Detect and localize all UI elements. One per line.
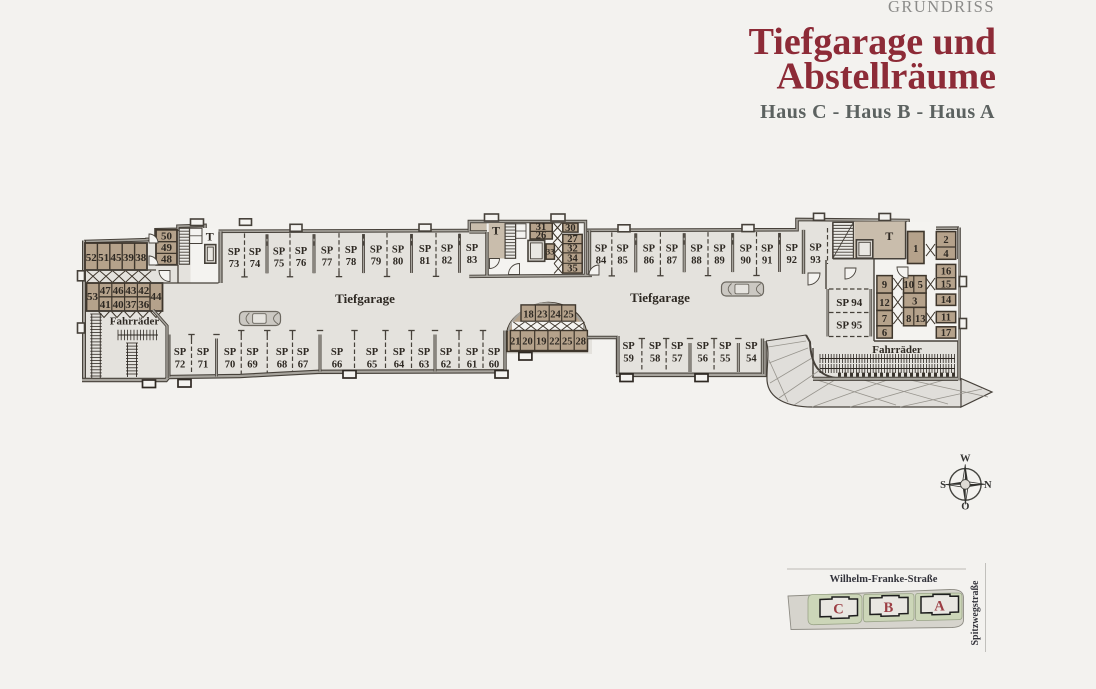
svg-text:73: 73 (229, 259, 240, 270)
svg-text:86: 86 (644, 256, 655, 267)
svg-text:19: 19 (536, 337, 547, 348)
svg-text:37: 37 (125, 299, 137, 311)
svg-text:S: S (940, 480, 946, 491)
svg-text:74: 74 (250, 259, 261, 270)
svg-text:SP: SP (246, 347, 259, 358)
svg-text:SP: SP (786, 243, 799, 254)
svg-text:Fahrräder: Fahrräder (872, 344, 922, 356)
svg-text:O: O (961, 502, 969, 513)
svg-text:3: 3 (912, 297, 917, 308)
svg-text:SP: SP (690, 243, 703, 254)
svg-text:Wilhelm-Franke-Straße: Wilhelm-Franke-Straße (830, 574, 938, 585)
svg-text:12: 12 (879, 298, 890, 309)
svg-text:42: 42 (138, 285, 150, 297)
svg-text:88: 88 (691, 255, 702, 266)
svg-text:SP: SP (419, 244, 432, 255)
svg-text:Fahrräder: Fahrräder (110, 316, 160, 328)
svg-text:22: 22 (549, 337, 560, 348)
svg-text:SP: SP (392, 244, 405, 255)
svg-text:39: 39 (123, 252, 135, 264)
svg-text:87: 87 (667, 256, 678, 267)
svg-text:4: 4 (943, 249, 949, 260)
svg-text:SP: SP (441, 243, 454, 254)
svg-text:1: 1 (913, 244, 918, 255)
svg-text:70: 70 (225, 360, 236, 371)
svg-text:28: 28 (576, 337, 587, 348)
svg-text:9: 9 (882, 280, 887, 291)
svg-text:25: 25 (562, 337, 573, 348)
svg-text:SP: SP (370, 245, 383, 256)
svg-text:53: 53 (87, 291, 99, 303)
svg-text:SP: SP (643, 244, 656, 255)
svg-text:38: 38 (135, 252, 147, 264)
svg-text:SP: SP (671, 341, 684, 352)
svg-text:43: 43 (125, 285, 137, 297)
svg-text:81: 81 (420, 256, 431, 267)
svg-text:90: 90 (741, 255, 752, 266)
svg-text:20: 20 (522, 337, 533, 348)
svg-text:65: 65 (367, 360, 378, 371)
svg-text:SP: SP (697, 341, 710, 352)
svg-text:35: 35 (567, 264, 578, 275)
svg-text:77: 77 (322, 258, 333, 269)
svg-text:72: 72 (175, 360, 186, 371)
svg-text:56: 56 (698, 354, 709, 365)
svg-text:64: 64 (394, 360, 405, 371)
svg-text:67: 67 (298, 360, 309, 371)
svg-text:SP: SP (466, 347, 479, 358)
svg-text:52: 52 (86, 252, 98, 264)
svg-text:15: 15 (941, 280, 952, 291)
svg-text:SP: SP (666, 244, 679, 255)
svg-text:SP: SP (366, 347, 379, 358)
svg-text:63: 63 (419, 360, 430, 371)
svg-text:T: T (206, 230, 214, 244)
svg-text:N: N (984, 480, 992, 491)
svg-text:SP 94: SP 94 (836, 297, 862, 309)
svg-text:30: 30 (565, 223, 576, 234)
svg-text:SP: SP (713, 243, 726, 254)
svg-text:8: 8 (906, 314, 911, 325)
svg-text:14: 14 (941, 295, 952, 306)
svg-text:75: 75 (274, 258, 285, 269)
svg-text:Tiefgarage: Tiefgarage (335, 291, 395, 306)
svg-text:61: 61 (467, 360, 478, 371)
svg-text:SP: SP (761, 243, 774, 254)
svg-text:SP: SP (228, 247, 241, 258)
svg-text:Haus C - Haus B - Haus A: Haus C - Haus B - Haus A (760, 101, 995, 123)
svg-text:33: 33 (546, 247, 555, 257)
svg-text:SP: SP (616, 244, 629, 255)
svg-text:82: 82 (442, 255, 453, 266)
svg-text:SP: SP (197, 347, 210, 358)
svg-text:55: 55 (720, 354, 731, 365)
svg-text:49: 49 (161, 242, 173, 254)
svg-text:44: 44 (151, 291, 163, 303)
svg-text:7: 7 (882, 314, 887, 325)
svg-text:24: 24 (550, 310, 561, 321)
svg-text:SP: SP (249, 247, 262, 258)
svg-text:SP: SP (295, 246, 308, 257)
svg-text:50: 50 (161, 231, 173, 243)
svg-text:69: 69 (247, 360, 258, 371)
svg-text:SP: SP (321, 246, 334, 257)
svg-text:T: T (885, 229, 893, 243)
svg-text:36: 36 (138, 299, 150, 311)
svg-text:11: 11 (941, 313, 951, 324)
svg-text:47: 47 (100, 285, 112, 297)
svg-text:SP: SP (331, 347, 344, 358)
svg-text:W: W (960, 454, 971, 465)
svg-text:A: A (934, 599, 945, 615)
svg-text:46: 46 (113, 285, 125, 297)
svg-text:85: 85 (617, 256, 628, 267)
svg-text:54: 54 (746, 354, 757, 365)
svg-text:SP: SP (418, 347, 431, 358)
svg-text:40: 40 (113, 299, 125, 311)
svg-text:SP: SP (745, 341, 758, 352)
svg-text:SP: SP (595, 244, 608, 255)
svg-text:T: T (492, 224, 500, 238)
svg-text:C: C (833, 602, 843, 618)
svg-text:Abstellräume: Abstellräume (776, 56, 996, 98)
svg-text:17: 17 (941, 328, 952, 339)
svg-text:16: 16 (941, 267, 952, 278)
svg-text:57: 57 (672, 354, 683, 365)
svg-text:60: 60 (489, 360, 500, 371)
svg-text:SP: SP (224, 347, 237, 358)
svg-text:SP: SP (719, 341, 732, 352)
svg-text:5: 5 (918, 280, 923, 291)
svg-text:59: 59 (623, 354, 634, 365)
svg-text:13: 13 (915, 314, 926, 325)
svg-text:78: 78 (346, 257, 357, 268)
svg-text:Spitzwegstraße: Spitzwegstraße (970, 580, 981, 646)
svg-text:B: B (884, 600, 894, 616)
svg-text:41: 41 (100, 299, 111, 311)
svg-text:SP: SP (174, 347, 187, 358)
svg-text:SP: SP (740, 243, 753, 254)
svg-text:SP: SP (393, 347, 406, 358)
svg-text:SP: SP (809, 243, 822, 254)
svg-text:66: 66 (332, 360, 343, 371)
svg-text:92: 92 (787, 255, 798, 266)
svg-text:25: 25 (563, 310, 574, 321)
svg-text:62: 62 (441, 360, 452, 371)
svg-text:21: 21 (510, 337, 521, 348)
svg-text:51: 51 (98, 252, 109, 264)
svg-text:SP: SP (273, 246, 286, 257)
svg-text:SP: SP (276, 347, 289, 358)
svg-text:79: 79 (371, 257, 382, 268)
svg-text:58: 58 (650, 354, 661, 365)
svg-text:26: 26 (536, 230, 547, 241)
svg-text:48: 48 (161, 254, 173, 266)
svg-text:SP: SP (345, 245, 358, 256)
svg-text:71: 71 (198, 360, 209, 371)
svg-text:SP: SP (440, 347, 453, 358)
svg-text:SP: SP (622, 341, 635, 352)
svg-text:89: 89 (714, 255, 725, 266)
svg-text:10: 10 (903, 280, 914, 291)
svg-text:18: 18 (523, 310, 534, 321)
svg-text:6: 6 (882, 328, 887, 339)
svg-text:SP: SP (488, 347, 501, 358)
svg-text:76: 76 (296, 258, 307, 269)
svg-text:GRUNDRISS: GRUNDRISS (888, 0, 995, 16)
svg-text:80: 80 (393, 256, 404, 267)
svg-text:93: 93 (810, 255, 821, 266)
svg-text:2: 2 (943, 235, 948, 246)
svg-text:Tiefgarage: Tiefgarage (630, 290, 690, 305)
svg-text:68: 68 (277, 360, 288, 371)
svg-text:23: 23 (537, 310, 548, 321)
svg-text:83: 83 (467, 255, 478, 266)
svg-text:SP 95: SP 95 (836, 320, 862, 332)
svg-text:SP: SP (297, 347, 310, 358)
svg-text:91: 91 (762, 255, 773, 266)
svg-text:SP: SP (649, 341, 662, 352)
svg-text:45: 45 (111, 252, 123, 264)
svg-text:SP: SP (466, 243, 479, 254)
